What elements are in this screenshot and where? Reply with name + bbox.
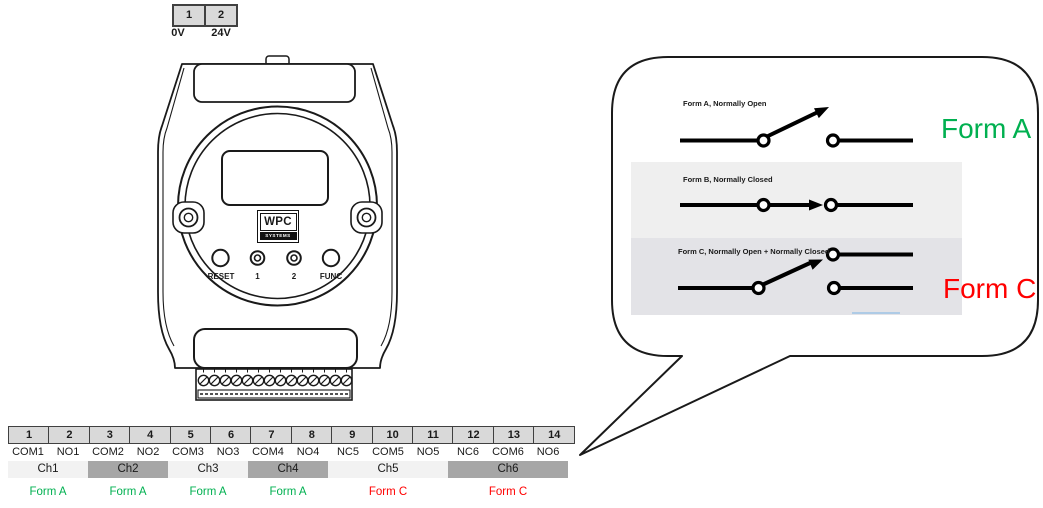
pin-number-row: 1 2 3 4 5 6 7 8 9 10 11 12 13 14	[8, 426, 570, 444]
pin-label: NO4	[288, 445, 328, 459]
device-logo: WPC SYSTEMS	[257, 210, 299, 243]
form-c-section-title: Form C, Normally Open + Normally Closed	[678, 247, 830, 256]
pin-label-row: COM1 NO1 COM2 NO2 COM3 NO3 COM4 NO4 NC5 …	[8, 444, 570, 459]
channel-ch2: Ch2	[88, 461, 168, 478]
pin-label: COM4	[248, 445, 288, 459]
terminal-block	[196, 369, 352, 400]
pin-label: COM6	[488, 445, 528, 459]
pin-label: COM1	[8, 445, 48, 459]
form-type-ch2: Form A	[88, 486, 168, 499]
form-b-panel	[631, 162, 962, 238]
pin-number: 3	[89, 426, 131, 444]
pin-number: 11	[412, 426, 454, 444]
pin-label: NO5	[408, 445, 448, 459]
pin-label: COM3	[168, 445, 208, 459]
channel-ch1: Ch1	[8, 461, 88, 478]
form-type-ch1: Form A	[8, 486, 88, 499]
pin-label: NC5	[328, 445, 368, 459]
device-bottom-panel	[194, 329, 357, 368]
pin-number: 14	[533, 426, 575, 444]
documentation-page: 1 2 0V 24V WPC SYSTEMS RESET 1 2 FUNC Fo…	[0, 0, 1043, 508]
pin-label: NO6	[528, 445, 568, 459]
pin-number: 10	[372, 426, 414, 444]
device-display-window	[222, 151, 328, 205]
channel-ch4: Ch4	[248, 461, 328, 478]
pin-number: 1	[8, 426, 50, 444]
form-type-ch3: Form A	[168, 486, 248, 499]
pin-number: 13	[493, 426, 535, 444]
power-pin-1-label: 0V	[166, 27, 190, 39]
form-row: Form A Form A Form A Form A Form C Form …	[8, 486, 570, 499]
pin-assignment-table: 1 2 3 4 5 6 7 8 9 10 11 12 13 14 COM1 NO…	[8, 426, 570, 499]
pin-label: NO1	[48, 445, 88, 459]
pin-label: NO2	[128, 445, 168, 459]
power-pin-2: 2	[204, 4, 238, 27]
form-type-ch5: Form C	[328, 486, 448, 499]
channel-row: Ch1 Ch2 Ch3 Ch4 Ch5 Ch6	[8, 461, 570, 478]
power-pin-2-label: 24V	[204, 27, 238, 39]
pin-label: COM5	[368, 445, 408, 459]
pin-number: 12	[452, 426, 494, 444]
form-b-section-title: Form B, Normally Closed	[683, 175, 773, 184]
form-type-ch4: Form A	[248, 486, 328, 499]
pin-label: NO3	[208, 445, 248, 459]
form-a-section-title: Form A, Normally Open	[683, 99, 767, 108]
pin-number: 9	[331, 426, 373, 444]
pin-number: 7	[250, 426, 292, 444]
reset-button-label: RESET	[196, 272, 246, 281]
device-logo-subtext: SYSTEMS	[260, 232, 297, 240]
led2-label: 2	[284, 272, 304, 281]
pin-number: 4	[129, 426, 171, 444]
form-a-big-label: Form A	[941, 113, 1031, 145]
power-terminal-table: 1 2	[172, 4, 238, 27]
pin-number: 5	[170, 426, 212, 444]
device-top-panel	[194, 64, 355, 102]
mounting-hole-right	[351, 202, 382, 233]
mounting-hole-left	[173, 202, 204, 233]
pin-number: 6	[210, 426, 252, 444]
pin-label: COM2	[88, 445, 128, 459]
pin-number: 8	[291, 426, 333, 444]
func-button-label: FUNC	[308, 272, 354, 281]
power-pin-1: 1	[172, 4, 206, 27]
device-logo-text: WPC	[260, 213, 297, 231]
channel-ch5: Ch5	[328, 461, 448, 478]
channel-ch6: Ch6	[448, 461, 568, 478]
channel-ch3: Ch3	[168, 461, 248, 478]
form-c-big-label: Form C	[943, 273, 1036, 305]
pin-number: 2	[48, 426, 90, 444]
pin-label: NC6	[448, 445, 488, 459]
led1-label: 1	[247, 272, 268, 281]
form-type-ch6: Form C	[448, 486, 568, 499]
